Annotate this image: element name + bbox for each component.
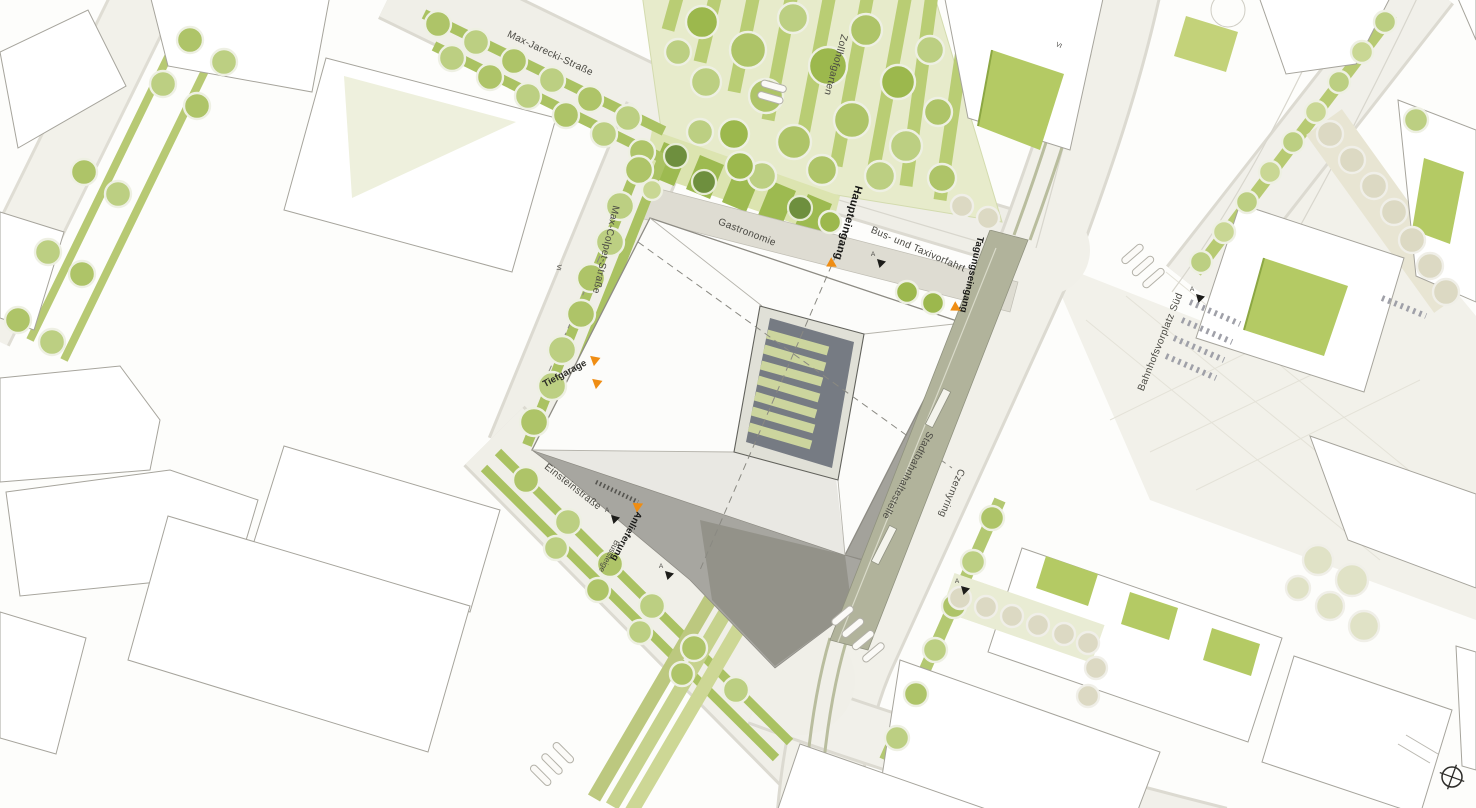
tree — [777, 125, 811, 159]
tree — [975, 596, 997, 618]
tree — [628, 620, 652, 644]
tree — [951, 195, 973, 217]
tree — [687, 119, 713, 145]
tree — [896, 281, 918, 303]
tree — [1316, 592, 1344, 620]
storey-numeral: VI — [554, 264, 562, 271]
tree — [1404, 108, 1428, 132]
tree — [977, 207, 999, 229]
tree — [577, 86, 603, 112]
tree — [719, 119, 749, 149]
tree — [885, 726, 909, 750]
tree — [1399, 227, 1425, 253]
tree — [723, 677, 749, 703]
tree — [1361, 173, 1387, 199]
tree — [1282, 131, 1304, 153]
section-letter: A — [1190, 286, 1195, 293]
tree — [1077, 685, 1099, 707]
tree — [539, 67, 565, 93]
tree — [788, 196, 812, 220]
tree — [686, 6, 718, 38]
tree — [548, 336, 576, 364]
tree — [916, 36, 944, 64]
tree — [1336, 564, 1368, 596]
tree — [961, 550, 985, 574]
tree — [1053, 623, 1075, 645]
tree — [553, 102, 579, 128]
tree — [1236, 191, 1258, 213]
tree — [642, 180, 662, 200]
tree — [807, 155, 837, 185]
tree — [1259, 161, 1281, 183]
tree — [615, 105, 641, 131]
section-marker-icon — [1196, 294, 1205, 303]
tree — [1339, 147, 1365, 173]
section-letter: A — [871, 251, 876, 258]
tree — [922, 292, 944, 314]
tree — [555, 509, 581, 535]
tree — [211, 49, 237, 75]
tree — [890, 130, 922, 162]
tree — [924, 98, 952, 126]
section-letter: A — [955, 578, 960, 585]
tree — [1085, 657, 1107, 679]
tree — [1303, 545, 1333, 575]
tree — [567, 300, 595, 328]
tree — [150, 71, 176, 97]
tree — [1213, 221, 1235, 243]
section-letter: A — [605, 507, 610, 514]
tree — [1417, 253, 1443, 279]
tree — [865, 161, 895, 191]
tree — [439, 45, 465, 71]
tree — [1317, 121, 1343, 147]
tree — [69, 261, 95, 287]
tree — [665, 39, 691, 65]
tree — [904, 682, 928, 706]
tree — [177, 27, 203, 53]
section-letter: A — [659, 563, 664, 570]
tree — [513, 467, 539, 493]
tree — [1374, 11, 1396, 33]
tree — [639, 593, 665, 619]
tree — [730, 32, 766, 68]
tree — [463, 29, 489, 55]
tree — [928, 164, 956, 192]
tree — [980, 506, 1004, 530]
tree — [1328, 71, 1350, 93]
tree — [586, 578, 610, 602]
tree — [670, 662, 694, 686]
roundabout-island — [1211, 0, 1245, 27]
tree — [692, 170, 716, 194]
tree — [778, 3, 808, 33]
tree — [501, 48, 527, 74]
tree — [184, 93, 210, 119]
tree — [1349, 611, 1379, 641]
tree — [591, 121, 617, 147]
tree — [664, 144, 688, 168]
tree — [425, 11, 451, 37]
tree — [850, 14, 882, 46]
tree — [71, 159, 97, 185]
tree — [1190, 251, 1212, 273]
site-plan-canvas: Max-Jarecki-Straße Zollhofgarten Max-Col… — [0, 0, 1476, 808]
tree — [726, 152, 754, 180]
tree — [520, 408, 548, 436]
tree — [691, 67, 721, 97]
tree — [1433, 279, 1459, 305]
tree — [544, 536, 568, 560]
tree — [39, 329, 65, 355]
tree — [105, 181, 131, 207]
tree — [1351, 41, 1373, 63]
tree — [834, 102, 870, 138]
tree — [1077, 632, 1099, 654]
site-plan: Max-Jarecki-Straße Zollhofgarten Max-Col… — [0, 0, 1476, 808]
tree — [1305, 101, 1327, 123]
tree — [35, 239, 61, 265]
tree — [1381, 199, 1407, 225]
tree — [923, 638, 947, 662]
tree — [5, 307, 31, 333]
tree — [515, 83, 541, 109]
tree — [1001, 605, 1023, 627]
tree — [1027, 614, 1049, 636]
tree — [681, 635, 707, 661]
tree — [819, 211, 841, 233]
tree — [477, 64, 503, 90]
tree — [1286, 576, 1310, 600]
tree — [881, 65, 915, 99]
